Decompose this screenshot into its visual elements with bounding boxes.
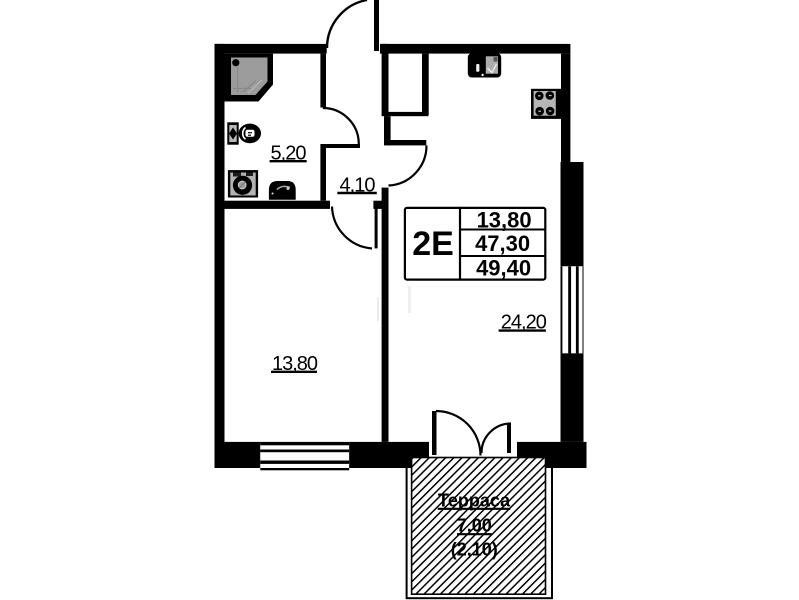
svg-text:13,80: 13,80 <box>477 208 532 233</box>
svg-text:2E: 2E <box>412 225 454 263</box>
svg-text:Терраса: Терраса <box>438 490 511 510</box>
svg-text:7,00: 7,00 <box>457 516 492 536</box>
svg-text:47,30: 47,30 <box>475 231 530 256</box>
svg-text:(2,10): (2,10) <box>451 540 498 560</box>
svg-text:49,40: 49,40 <box>476 256 531 281</box>
